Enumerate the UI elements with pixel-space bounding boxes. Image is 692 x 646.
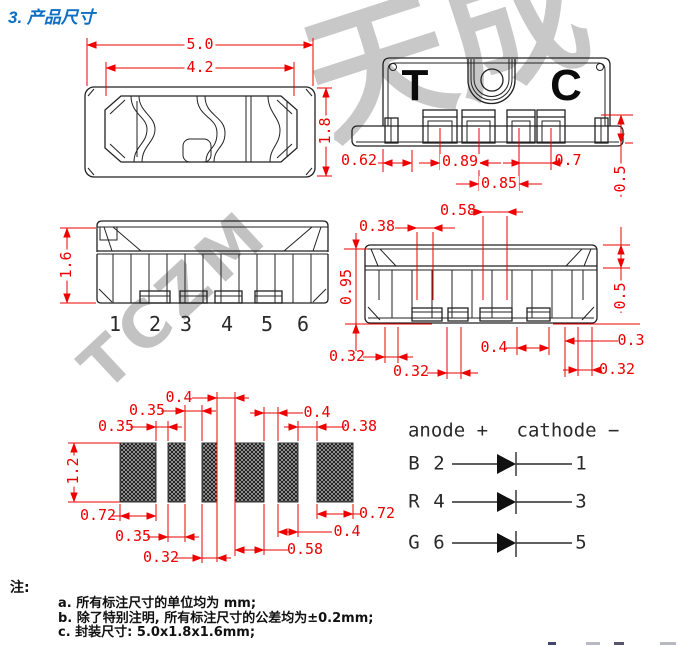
footer-cropped-text (614, 642, 624, 645)
dim-label-pad4-width: 0.58 (287, 542, 323, 558)
footer-cropped-text (548, 642, 556, 645)
anode-pin-b: 2 (433, 455, 444, 474)
dim-label-pad-gap23: 0.35 (129, 403, 165, 419)
top-view-drawing (85, 87, 315, 177)
dim-label-back-032-mid: 0.32 (393, 364, 429, 380)
channel-label-b: B (408, 455, 419, 474)
pin-number-4: 4 (221, 314, 233, 334)
dim-label-back-032-left: 0.32 (329, 349, 365, 365)
dim-label-pad3-width: 0.32 (143, 550, 179, 566)
dim-label-top-opening-width: 4.2 (184, 60, 215, 76)
dim-label-edge-to-pin1: 0.62 (341, 153, 377, 169)
dim-label-pitch-23: 0.85 (479, 176, 519, 192)
dim-label-pitch-12: 0.89 (440, 154, 480, 170)
channel-label-r: R (408, 493, 419, 512)
dim-label-front-height: 1.6 (59, 249, 75, 280)
circuit-diagram (452, 452, 572, 557)
dim-label-top-depth: 1.8 (318, 115, 334, 146)
note-item-c: c. 封装尺寸: 5.0x1.8x1.6mm; (58, 621, 255, 640)
dim-label-pad-gap12: 0.35 (98, 419, 134, 435)
cathode-header: cathode − (517, 422, 620, 441)
dim-label-back-058: 0.58 (440, 203, 476, 219)
dim-label-pad1-width: 0.72 (80, 508, 116, 524)
dim-label-pad-gap34: 0.4 (165, 390, 192, 406)
channel-label-g: G (408, 534, 419, 553)
cathode-pin-g: 5 (575, 534, 586, 553)
footer-cropped-text (586, 642, 600, 645)
section-title: 3. 产品尺寸 (8, 3, 95, 28)
dim-label-pad5-width: 0.4 (333, 524, 360, 540)
anode-pin-r: 4 (433, 493, 444, 512)
dim-label-pad2-width: 0.35 (115, 529, 151, 545)
bottom-view-drawing (352, 58, 623, 146)
pad-layout-drawing (120, 443, 353, 502)
package-mark-t: T (402, 64, 429, 108)
back-view-drawing (365, 245, 597, 323)
package-mark-c: C (550, 64, 582, 108)
dim-label-back-05: 0.5 (613, 280, 629, 311)
pin-number-2: 2 (149, 314, 161, 334)
dim-label-pad-gap45: 0.4 (303, 405, 330, 421)
notes-label: 注: (10, 577, 30, 597)
technical-drawing-canvas (0, 0, 692, 646)
dim-label-back-038: 0.38 (359, 219, 395, 235)
dim-label-pad-height: 1.2 (66, 455, 82, 486)
cathode-pin-b: 1 (575, 455, 586, 474)
dim-label-pad-gap56: 0.38 (341, 419, 377, 435)
dim-label-back-03: 0.3 (617, 333, 644, 349)
dim-label-back-04: 0.4 (480, 340, 507, 356)
dim-label-back-032-right: 0.32 (599, 362, 635, 378)
cathode-pin-r: 3 (575, 493, 586, 512)
pin-number-3: 3 (180, 314, 192, 334)
dim-label-back-095: 0.95 (339, 269, 355, 305)
anode-pin-g: 6 (433, 534, 444, 553)
dim-label-pitch-34: 0.7 (554, 153, 581, 169)
dim-label-pad6-width: 0.72 (359, 506, 395, 522)
front-view-drawing (97, 221, 328, 303)
pin-number-5: 5 (261, 314, 273, 334)
dim-label-lead-length: 0.5 (613, 163, 629, 194)
pin-number-6: 6 (297, 314, 309, 334)
footer-cropped-text (660, 642, 676, 645)
anode-header: anode + (408, 422, 488, 441)
pin-number-1: 1 (109, 314, 121, 334)
datasheet-page: 天成 TCZM 3. 产品尺寸 (0, 0, 692, 646)
dim-label-top-outer-width: 5.0 (184, 37, 215, 53)
